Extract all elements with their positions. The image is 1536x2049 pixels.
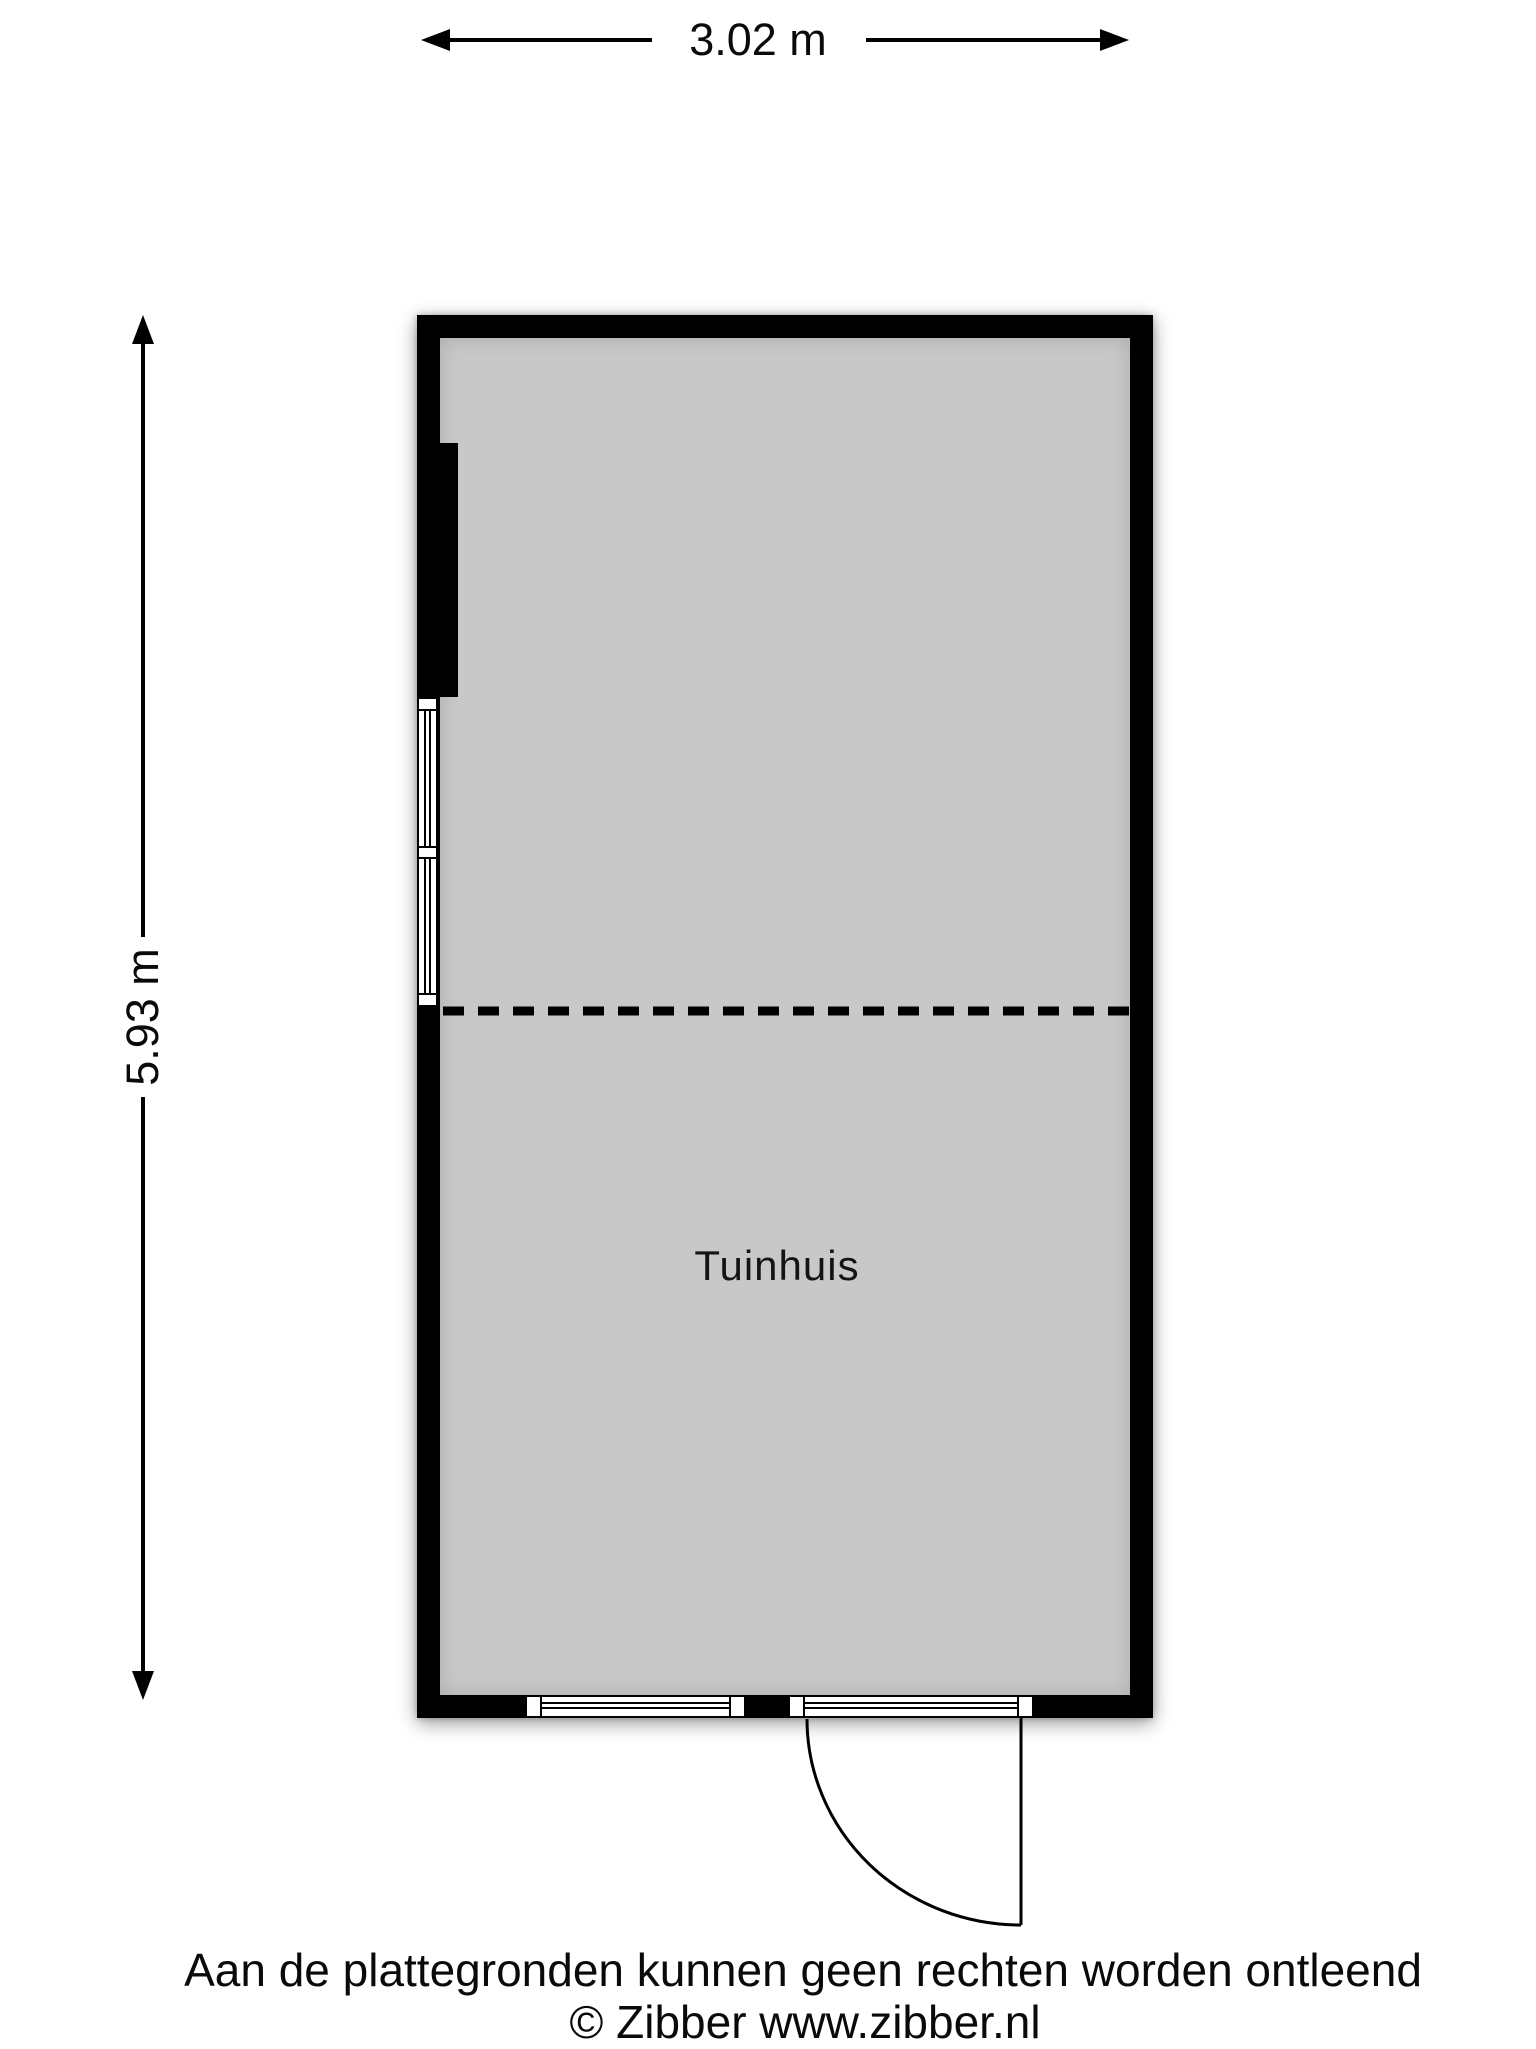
bottom-window bbox=[525, 1695, 746, 1718]
room-floor bbox=[440, 338, 1130, 1695]
wall-pillar bbox=[417, 443, 458, 697]
window-sill bbox=[729, 1695, 746, 1718]
window-pane bbox=[417, 711, 438, 846]
footer-copyright: © Zibber www.zibber.nl bbox=[569, 1995, 1040, 2049]
room-label: Tuinhuis bbox=[694, 1242, 859, 1290]
door-swing-arc bbox=[807, 1719, 1021, 1925]
window-mullion bbox=[424, 859, 431, 994]
footer-disclaimer: Aan de plattegronden kunnen geen rechten… bbox=[184, 1943, 1422, 1997]
width-dimension-label: 3.02 m bbox=[689, 14, 827, 66]
door-jamb bbox=[788, 1695, 805, 1718]
window-sill bbox=[417, 697, 438, 711]
height-dimension-label: 5.93 m bbox=[117, 948, 169, 1086]
window-sill bbox=[525, 1695, 542, 1718]
window-mullion bbox=[542, 1702, 729, 1709]
window-mullion bbox=[424, 711, 431, 846]
window-pane bbox=[542, 1695, 729, 1718]
door-pane bbox=[805, 1695, 1017, 1718]
door-mullion bbox=[805, 1702, 1017, 1709]
door-glazing bbox=[788, 1695, 1034, 1718]
window-sill bbox=[417, 846, 438, 859]
door-jamb bbox=[1017, 1695, 1034, 1718]
left-window bbox=[417, 697, 438, 1007]
door-swing bbox=[807, 1718, 1021, 1925]
window-pane bbox=[417, 859, 438, 994]
window-sill bbox=[417, 993, 438, 1007]
